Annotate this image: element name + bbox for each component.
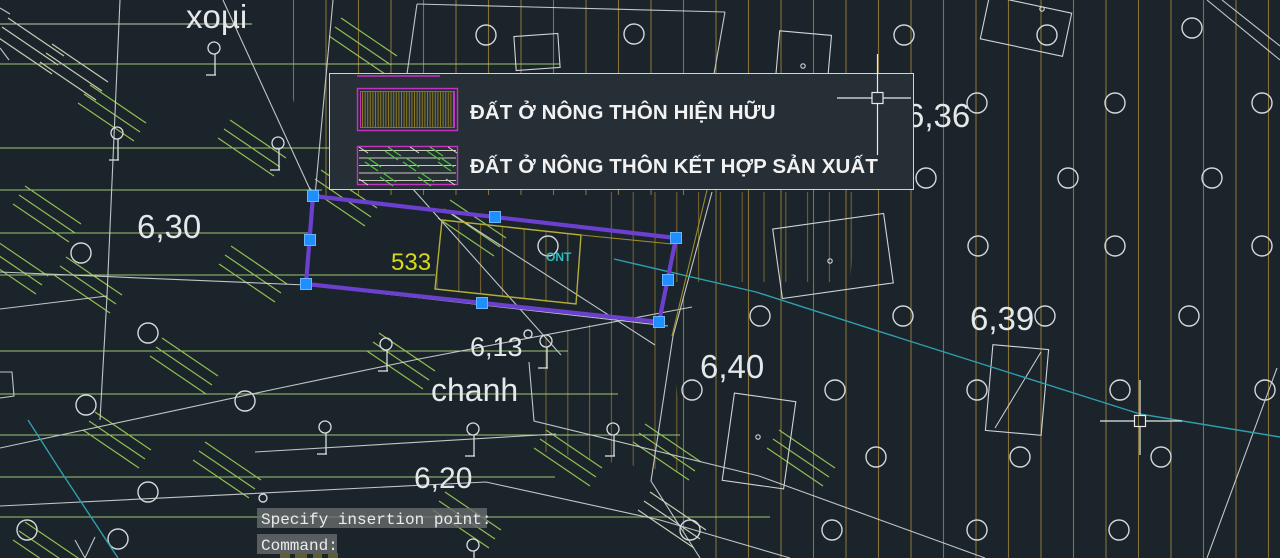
svg-text:xoµi: xoµi xyxy=(186,0,247,35)
svg-text:533: 533 xyxy=(391,249,431,276)
svg-text:ĐẤT Ở NÔNG THÔN HIỆN HỮU: ĐẤT Ở NÔNG THÔN HIỆN HỮU xyxy=(470,100,776,124)
svg-text:6,39: 6,39 xyxy=(970,300,1034,337)
svg-text:ONT: ONT xyxy=(546,250,572,264)
svg-text:6,20: 6,20 xyxy=(414,462,472,495)
svg-text:chanh: chanh xyxy=(431,372,518,408)
svg-text:6,40: 6,40 xyxy=(700,348,764,385)
svg-text:ĐẤT Ở NÔNG THÔN KẾT HỢP SẢN XU: ĐẤT Ở NÔNG THÔN KẾT HỢP SẢN XUẤT xyxy=(470,154,878,178)
svg-text:6,36: 6,36 xyxy=(906,97,970,134)
svg-text:6,30: 6,30 xyxy=(137,208,201,245)
svg-text:Specify insertion point:: Specify insertion point: xyxy=(261,511,491,529)
svg-text:Command:: Command: xyxy=(261,537,338,555)
svg-text:6,13: 6,13 xyxy=(470,332,523,362)
